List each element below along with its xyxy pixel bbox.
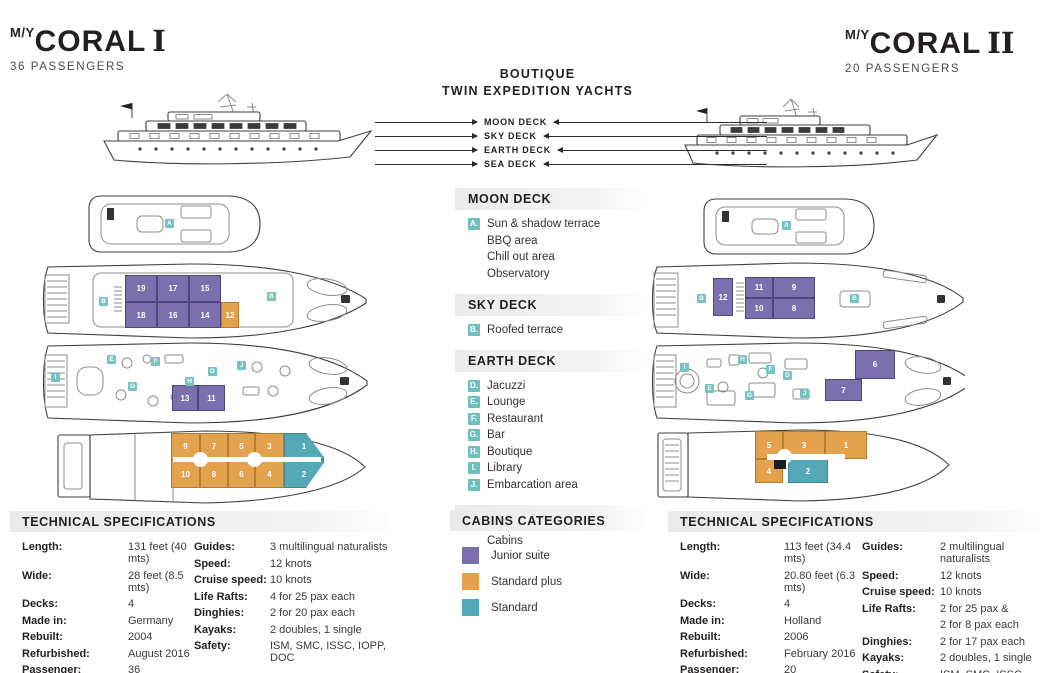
deck-area-badge: I	[680, 363, 689, 372]
cabin-cell: 10	[745, 298, 773, 319]
legend-item: B.Roofed terrace	[468, 323, 647, 337]
spec-label: Safety:	[862, 669, 940, 673]
legend-item: J.Embarcation area	[468, 478, 647, 492]
coral2-specs-col2: Guides:2 multilingual naturalists Speed:…	[862, 541, 1040, 673]
brochure-page: M/YCORALI 36 PASSENGERS M/YCORALII 20 PA…	[0, 0, 1047, 673]
spec-label: Dinghies:	[862, 636, 940, 648]
arrow-left-icon	[543, 133, 549, 139]
spec-label: Passenger:	[680, 664, 784, 673]
cabins-categories-title: CABINS CATEGORIES	[450, 510, 642, 531]
tagline-line2: TWIN EXPEDITION YACHTS	[390, 83, 685, 100]
spec-value: 10 knots	[940, 586, 1040, 598]
junior-suite-swatch	[462, 547, 479, 564]
pointer-line	[544, 164, 767, 165]
arrow-right-icon	[472, 161, 478, 167]
coral1-specs-panel: TECHNICAL SPECIFICATIONS Length:131 feet…	[10, 511, 388, 673]
spec-label: Length:	[680, 541, 784, 565]
spec-value: 2 for 8 pax each	[940, 619, 1040, 631]
cabin-cell: 6	[855, 350, 895, 379]
spec-value: February 2016	[784, 648, 858, 660]
spec-label: Cruise speed:	[194, 574, 270, 586]
spec-value: 12 knots	[940, 570, 1040, 582]
spec-value: 4 for 25 pax each	[270, 591, 388, 603]
spec-label: Guides:	[862, 541, 940, 565]
hull-outline	[645, 339, 965, 424]
cabin-cell: 7	[825, 379, 862, 401]
coral1-profile-illustration	[48, 90, 378, 186]
coral2-sky-deck-plan: 12 11 9 10 8 B B	[645, 261, 965, 339]
spec-value: 131 feet (40 mts)	[128, 541, 190, 565]
arrow-right-icon	[472, 133, 478, 139]
spec-label: Cruise speed:	[862, 586, 940, 598]
deck-pointer-label: EARTH DECK	[484, 145, 551, 155]
deck-area-badge: B	[99, 297, 108, 306]
spec-label: Rebuilt:	[680, 631, 784, 643]
coral2-moon-deck-plan: A	[700, 196, 880, 258]
legend-item: H.Boutique	[468, 445, 647, 459]
arrow-left-icon	[553, 119, 559, 125]
spec-value: 20.80 feet (6.3 mts)	[784, 570, 858, 594]
spec-value: ISM, SMC, ISSC, IOPP, DOC	[940, 669, 1040, 673]
spec-label: Wide:	[22, 570, 128, 594]
spec-label: Speed:	[194, 558, 270, 570]
category-label: Standard plus	[491, 576, 562, 588]
pointer-line	[375, 122, 477, 123]
coral1-title: M/YCORALI 36 PASSENGERS	[10, 24, 166, 73]
spec-value: Germany	[128, 615, 190, 627]
deck-area-badge: D	[208, 367, 217, 376]
spec-value: 2 for 17 pax each	[940, 636, 1040, 648]
cabin-cell: 14	[189, 302, 221, 328]
arrow-left-icon	[543, 161, 549, 167]
deck-area-badge: G	[745, 391, 754, 400]
cabin-cell: 8	[773, 298, 815, 319]
category-row: Standard plus	[462, 573, 642, 590]
cabin-cell: 17	[157, 275, 189, 302]
pointer-line	[375, 164, 477, 165]
pointer-line	[554, 122, 767, 123]
cabins-categories-panel: CABINS CATEGORIES Junior suite Standard …	[450, 510, 642, 616]
cabin-cell: 9	[773, 277, 815, 298]
spec-label: Decks:	[680, 598, 784, 610]
legend-section-title: MOON DECK	[455, 188, 647, 210]
deck-pointer-label: SEA DECK	[484, 159, 537, 169]
deck-area-badge: G	[128, 382, 137, 391]
legend-item-label: Embarcation area	[487, 478, 578, 492]
legend-badge-a: A.	[468, 218, 480, 230]
deck-area-badge: D	[783, 371, 792, 380]
coral2-sea-deck-plan: 5 3 1 4 2	[655, 427, 955, 505]
deck-area-badge: A	[165, 219, 174, 228]
coral2-specs-col1: Length:113 feet (34.4 mts) Wide:20.80 fe…	[680, 541, 858, 673]
spec-value: 10 knots	[270, 574, 388, 586]
arrow-right-icon	[472, 119, 478, 125]
pointer-line	[544, 136, 767, 137]
spec-label	[862, 619, 940, 631]
cabin-cell: 11	[198, 385, 225, 411]
legend-item-label: Chill out area	[487, 250, 555, 264]
spec-label: Rebuilt:	[22, 631, 128, 643]
legend-item: Observatory	[468, 267, 647, 281]
legend-item: Chill out area	[468, 250, 647, 264]
spec-value: 2 doubles, 1 single	[270, 624, 388, 636]
spec-value: Holland	[784, 615, 858, 627]
coral1-passengers: 36 PASSENGERS	[10, 61, 166, 73]
spec-value: 12 knots	[270, 558, 388, 570]
legend-item-label: Roofed terrace	[487, 323, 563, 337]
spec-label: Made in:	[680, 615, 784, 627]
standard-plus-swatch	[462, 573, 479, 590]
coral1-prefix: M/Y	[10, 25, 35, 40]
coral2-name: M/YCORALII	[845, 26, 1014, 61]
tagline-line1: BOUTIQUE	[390, 66, 685, 83]
standard-swatch	[462, 599, 479, 616]
pointer-line	[375, 136, 477, 137]
legend-badge-b: B.	[468, 324, 480, 336]
deck-pointer-label: MOON DECK	[484, 117, 547, 127]
spec-label: Refurbished:	[680, 648, 784, 660]
arrow-left-icon	[557, 147, 563, 153]
spec-value: 4	[128, 598, 190, 610]
coral1-specs-col2: Guides:3 multilingual naturalists Speed:…	[194, 541, 388, 673]
legend-section-title: SKY DECK	[455, 294, 647, 316]
legend-item-label: Library	[487, 461, 522, 475]
legend-item: D.Jacuzzi	[468, 379, 647, 393]
spec-label: Refurbished:	[22, 648, 128, 660]
legend-item: E.Lounge	[468, 395, 647, 409]
stairs-block	[774, 460, 786, 469]
cabin-cell: 13	[172, 385, 198, 411]
coral1-earth-deck-plan: 13 11 I E G F H D J	[35, 339, 370, 424]
deck-legend: MOON DECK A.Sun & shadow terrace BBQ are…	[455, 188, 647, 550]
coral1-specs-title: TECHNICAL SPECIFICATIONS	[10, 511, 388, 532]
legend-item-label: Lounge	[487, 395, 525, 409]
category-label: Junior suite	[491, 550, 550, 562]
spec-value: 2 for 25 pax &	[940, 603, 1040, 615]
deck-pointer-row: SEA DECK	[375, 159, 767, 169]
spec-value: 3 multilingual naturalists	[270, 541, 388, 553]
spec-label: Life Rafts:	[194, 591, 270, 603]
arrow-right-icon	[472, 147, 478, 153]
cabin-cell: 2	[788, 459, 828, 483]
coral2-specs-panel: TECHNICAL SPECIFICATIONS Length:113 feet…	[668, 511, 1040, 673]
legend-item-label: Sun & shadow terrace	[487, 217, 600, 231]
legend-item: G.Bar	[468, 428, 647, 442]
legend-badge-d: D.	[468, 380, 480, 392]
spec-label: Life Rafts:	[862, 603, 940, 615]
cabin-cell: 18	[125, 302, 157, 328]
spec-label: Made in:	[22, 615, 128, 627]
legend-badge-h: H.	[468, 446, 480, 458]
legend-section-title: EARTH DECK	[455, 350, 647, 372]
spec-value: 2 doubles, 1 single	[940, 652, 1040, 664]
deck-area-badge: J	[800, 389, 809, 398]
legend-badge-f: F.	[468, 413, 480, 425]
coral2-passengers: 20 PASSENGERS	[845, 63, 1014, 75]
lobby-circle	[193, 452, 208, 467]
coral2-prefix: M/Y	[845, 27, 870, 42]
coral2-earth-deck-plan: 6 7 I E H F G D J	[645, 339, 965, 424]
deck-pointer-row: MOON DECK	[375, 117, 767, 127]
legend-item-label: Bar	[487, 428, 505, 442]
legend-item-label: BBQ area	[487, 234, 538, 248]
spec-label: Safety:	[194, 640, 270, 664]
spec-label: Wide:	[680, 570, 784, 594]
legend-item: A.Sun & shadow terrace	[468, 217, 647, 231]
spec-label: Guides:	[194, 541, 270, 553]
spec-value: 4	[784, 598, 858, 610]
spec-value: 28 feet (8.5 mts)	[128, 570, 190, 594]
spec-label: Kayaks:	[194, 624, 270, 636]
spec-value: 2006	[784, 631, 858, 643]
tagline: BOUTIQUE TWIN EXPEDITION YACHTS	[390, 66, 685, 100]
coral1-name: M/YCORALI	[10, 24, 166, 59]
coral2-specs-title: TECHNICAL SPECIFICATIONS	[668, 511, 1040, 532]
spec-value: ISM, SMC, ISSC, IOPP, DOC	[270, 640, 388, 664]
legend-item-label: Restaurant	[487, 412, 543, 426]
deck-area-badge: B	[267, 292, 276, 301]
spec-value: 2 multilingual naturalists	[940, 541, 1040, 565]
legend-item: BBQ area	[468, 234, 647, 248]
coral1-sky-deck-plan: 19 17 15 18 16 14 12 B B	[35, 261, 370, 339]
deck-pointer-row: EARTH DECK	[375, 145, 767, 155]
deck-area-badge: H	[738, 355, 747, 364]
coral1-sea-deck-plan: 9 7 5 3 10 8 6 4 1 2	[55, 427, 370, 507]
deck-area-badge: E	[107, 355, 116, 364]
spec-label: Kayaks:	[862, 652, 940, 664]
legend-badge-j: J.	[468, 479, 480, 491]
cabin-cell: 16	[157, 302, 189, 328]
cabin-cell: 15	[189, 275, 221, 302]
legend-badge-g: G.	[468, 429, 480, 441]
spec-label: Speed:	[862, 570, 940, 582]
spec-value: 2 for 20 pax each	[270, 607, 388, 619]
cabin-cell: 19	[125, 275, 157, 302]
lobby-circle	[247, 452, 262, 467]
deck-area-badge: A	[782, 221, 791, 230]
spec-value: 36	[128, 664, 190, 673]
legend-item: F.Restaurant	[468, 412, 647, 426]
spec-value: 20	[784, 664, 858, 673]
hull-outline	[85, 192, 265, 258]
spec-label: Dinghies:	[194, 607, 270, 619]
hull-outline	[35, 339, 370, 424]
spec-value: 2004	[128, 631, 190, 643]
spec-label: Passenger:	[22, 664, 128, 673]
spec-label: Decks:	[22, 598, 128, 610]
legend-item: I.Library	[468, 461, 647, 475]
deck-area-badge: B	[697, 294, 706, 303]
category-label: Standard	[491, 602, 538, 614]
legend-item-label: Jacuzzi	[487, 379, 525, 393]
category-row: Junior suite	[462, 547, 642, 564]
deck-area-badge: F	[766, 365, 775, 374]
legend-badge-i: I.	[468, 462, 480, 474]
deck-area-badge: E	[705, 384, 714, 393]
coral2-title: M/YCORALII 20 PASSENGERS	[845, 26, 1014, 75]
coral1-specs-col1: Length:131 feet (40 mts) Wide:28 feet (8…	[22, 541, 190, 673]
pointer-line	[558, 150, 767, 151]
deck-area-badge: I	[51, 373, 60, 382]
deck-pointer-label: SKY DECK	[484, 131, 537, 141]
category-row: Standard	[462, 599, 642, 616]
spec-label: Length:	[22, 541, 128, 565]
cabin-cell: 11	[745, 277, 773, 298]
legend-item-label: Boutique	[487, 445, 532, 459]
cabin-cell: 12	[713, 278, 733, 316]
deck-area-badge: F	[151, 357, 160, 366]
legend-badge-e: E.	[468, 396, 480, 408]
coral1-moon-deck-plan: A	[85, 192, 265, 258]
deck-area-badge: B	[850, 294, 859, 303]
deck-area-badge: J	[237, 361, 246, 370]
spec-value: August 2016	[128, 648, 190, 660]
ship-profile-drawing	[48, 90, 378, 186]
deck-area-badge: H	[185, 377, 194, 386]
deck-pointer-row: SKY DECK	[375, 131, 767, 141]
spec-value: 113 feet (34.4 mts)	[784, 541, 858, 565]
legend-item-label: Observatory	[487, 267, 550, 281]
pointer-line	[375, 150, 477, 151]
cabin-cell: 12	[221, 302, 239, 328]
